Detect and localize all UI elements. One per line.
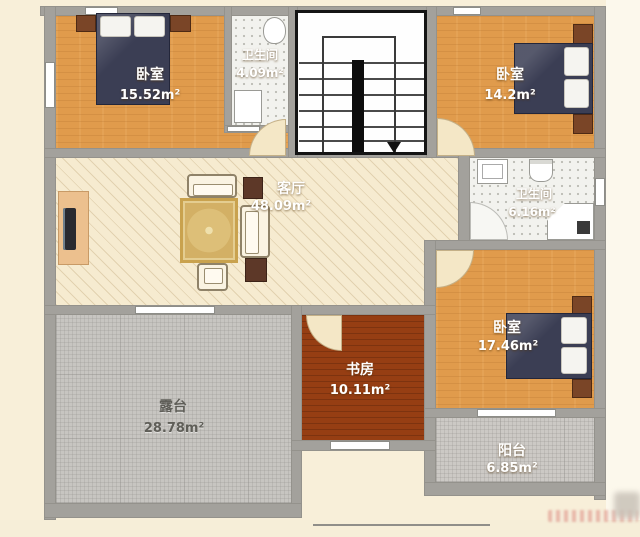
background-strip-bottom <box>0 520 640 537</box>
wall-bedroom3-top <box>424 240 606 250</box>
nightstand <box>76 15 96 32</box>
room-area-bedroom2: 14.2m² <box>470 88 550 103</box>
pillow <box>564 47 589 76</box>
sink-bath1 <box>263 17 286 44</box>
wall-right <box>594 6 606 500</box>
wall-balcony-bottom <box>424 482 606 496</box>
room-label-study: 书房 <box>327 359 393 379</box>
room-area-bath2: 6.16m² <box>500 205 564 219</box>
pillow <box>134 16 165 37</box>
nightstand <box>572 379 592 398</box>
room-area-living: 48.09m² <box>238 199 324 214</box>
room-label-bedroom1: 卧室 <box>115 64 185 84</box>
window-bath1-bottom <box>227 126 260 132</box>
room-area-bedroom3: 17.46m² <box>466 339 550 354</box>
room-area-balcony: 6.85m² <box>476 461 548 476</box>
watermark-blob <box>614 492 640 518</box>
room-label-living: 客厅 <box>258 178 324 198</box>
wall-bedroom3-left <box>424 240 436 496</box>
room-area-bath1: 4.09m² <box>228 66 292 80</box>
window-bedroom3-balcony <box>477 409 556 417</box>
wall-stairs-right <box>426 6 437 158</box>
pillow <box>561 347 587 374</box>
side-table <box>245 258 267 282</box>
window-living-terrace <box>135 306 215 314</box>
sink-bath2 <box>477 159 508 184</box>
sofa-top <box>187 174 237 198</box>
room-area-bedroom1: 15.52m² <box>105 88 195 103</box>
room-label-bath2: 卫生间 <box>496 185 572 202</box>
wall-terrace-right <box>291 305 302 518</box>
tv <box>63 208 76 250</box>
bathtub-bath1 <box>234 90 262 123</box>
window-bedroom2-top <box>453 7 481 15</box>
stair-core-wall <box>352 60 364 152</box>
armchair <box>197 263 228 291</box>
room-label-bath1: 卫生间 <box>222 46 298 63</box>
toilet-bath2 <box>529 159 553 182</box>
nightstand <box>573 24 593 45</box>
room-label-terrace: 露台 <box>138 396 208 416</box>
pillow <box>100 16 131 37</box>
wall-bath2-left <box>458 150 470 250</box>
room-label-bedroom3: 卧室 <box>472 317 542 337</box>
watermark-line <box>313 524 490 526</box>
window-bedroom1-left <box>45 62 55 108</box>
room-area-terrace: 28.78m² <box>128 421 220 436</box>
wall-terrace-bottom <box>44 503 302 518</box>
floor-plan: 卧室 15.52m² 卫生间 4.09m² 卧室 14.2m² 客厅 48.09… <box>0 0 640 537</box>
background-strip-right <box>606 0 640 537</box>
nightstand <box>170 15 191 32</box>
nightstand <box>573 114 593 134</box>
room-area-study: 10.11m² <box>315 383 405 398</box>
pillow <box>561 317 587 344</box>
room-label-bedroom2: 卧室 <box>475 64 545 84</box>
pillow <box>564 79 589 108</box>
room-label-balcony: 阳台 <box>482 440 542 460</box>
stair-direction-arrow-icon <box>387 142 401 153</box>
shower-drain <box>577 221 590 234</box>
window-bath2-right <box>595 178 605 206</box>
wall-living-bottom <box>44 305 436 315</box>
area-rug <box>180 198 238 263</box>
window-study-bottom <box>330 441 390 450</box>
